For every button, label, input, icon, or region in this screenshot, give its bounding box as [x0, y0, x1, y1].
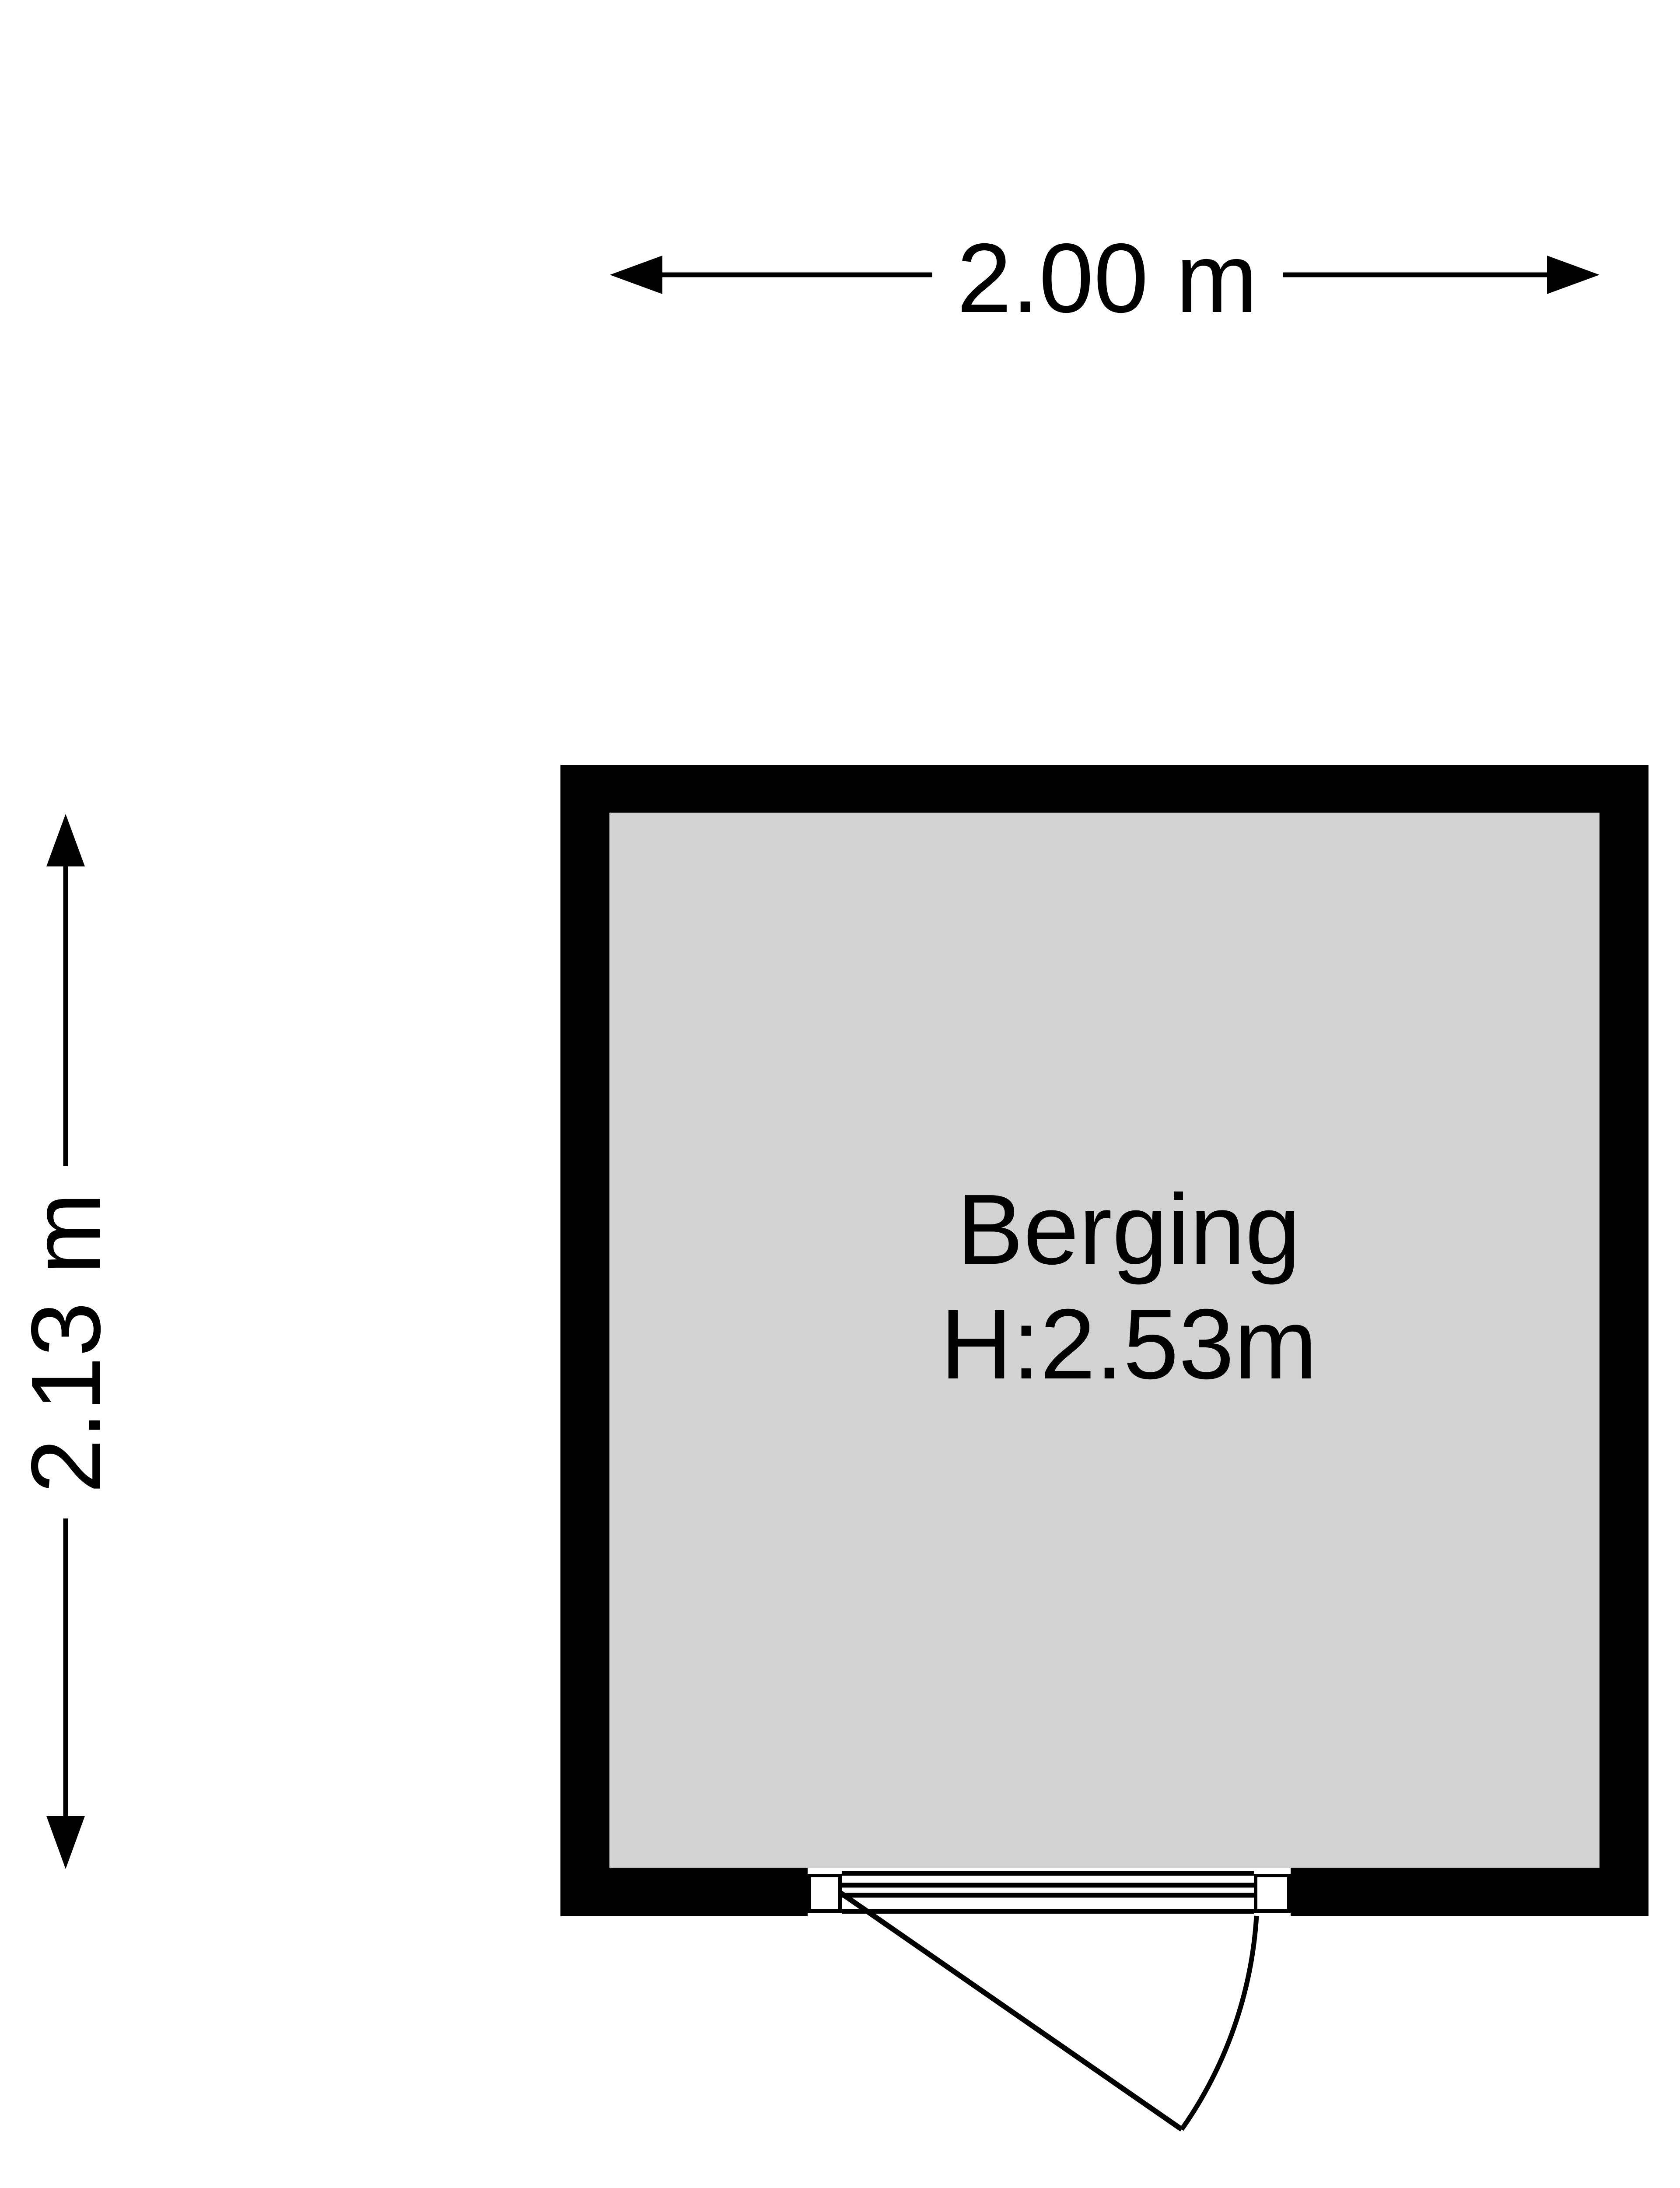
- svg-text:2.00 m: 2.00 m: [957, 223, 1258, 333]
- svg-text:2.13 m: 2.13 m: [10, 1192, 121, 1494]
- svg-text:Berging: Berging: [957, 1174, 1301, 1285]
- svg-text:H:2.53m: H:2.53m: [940, 1289, 1317, 1400]
